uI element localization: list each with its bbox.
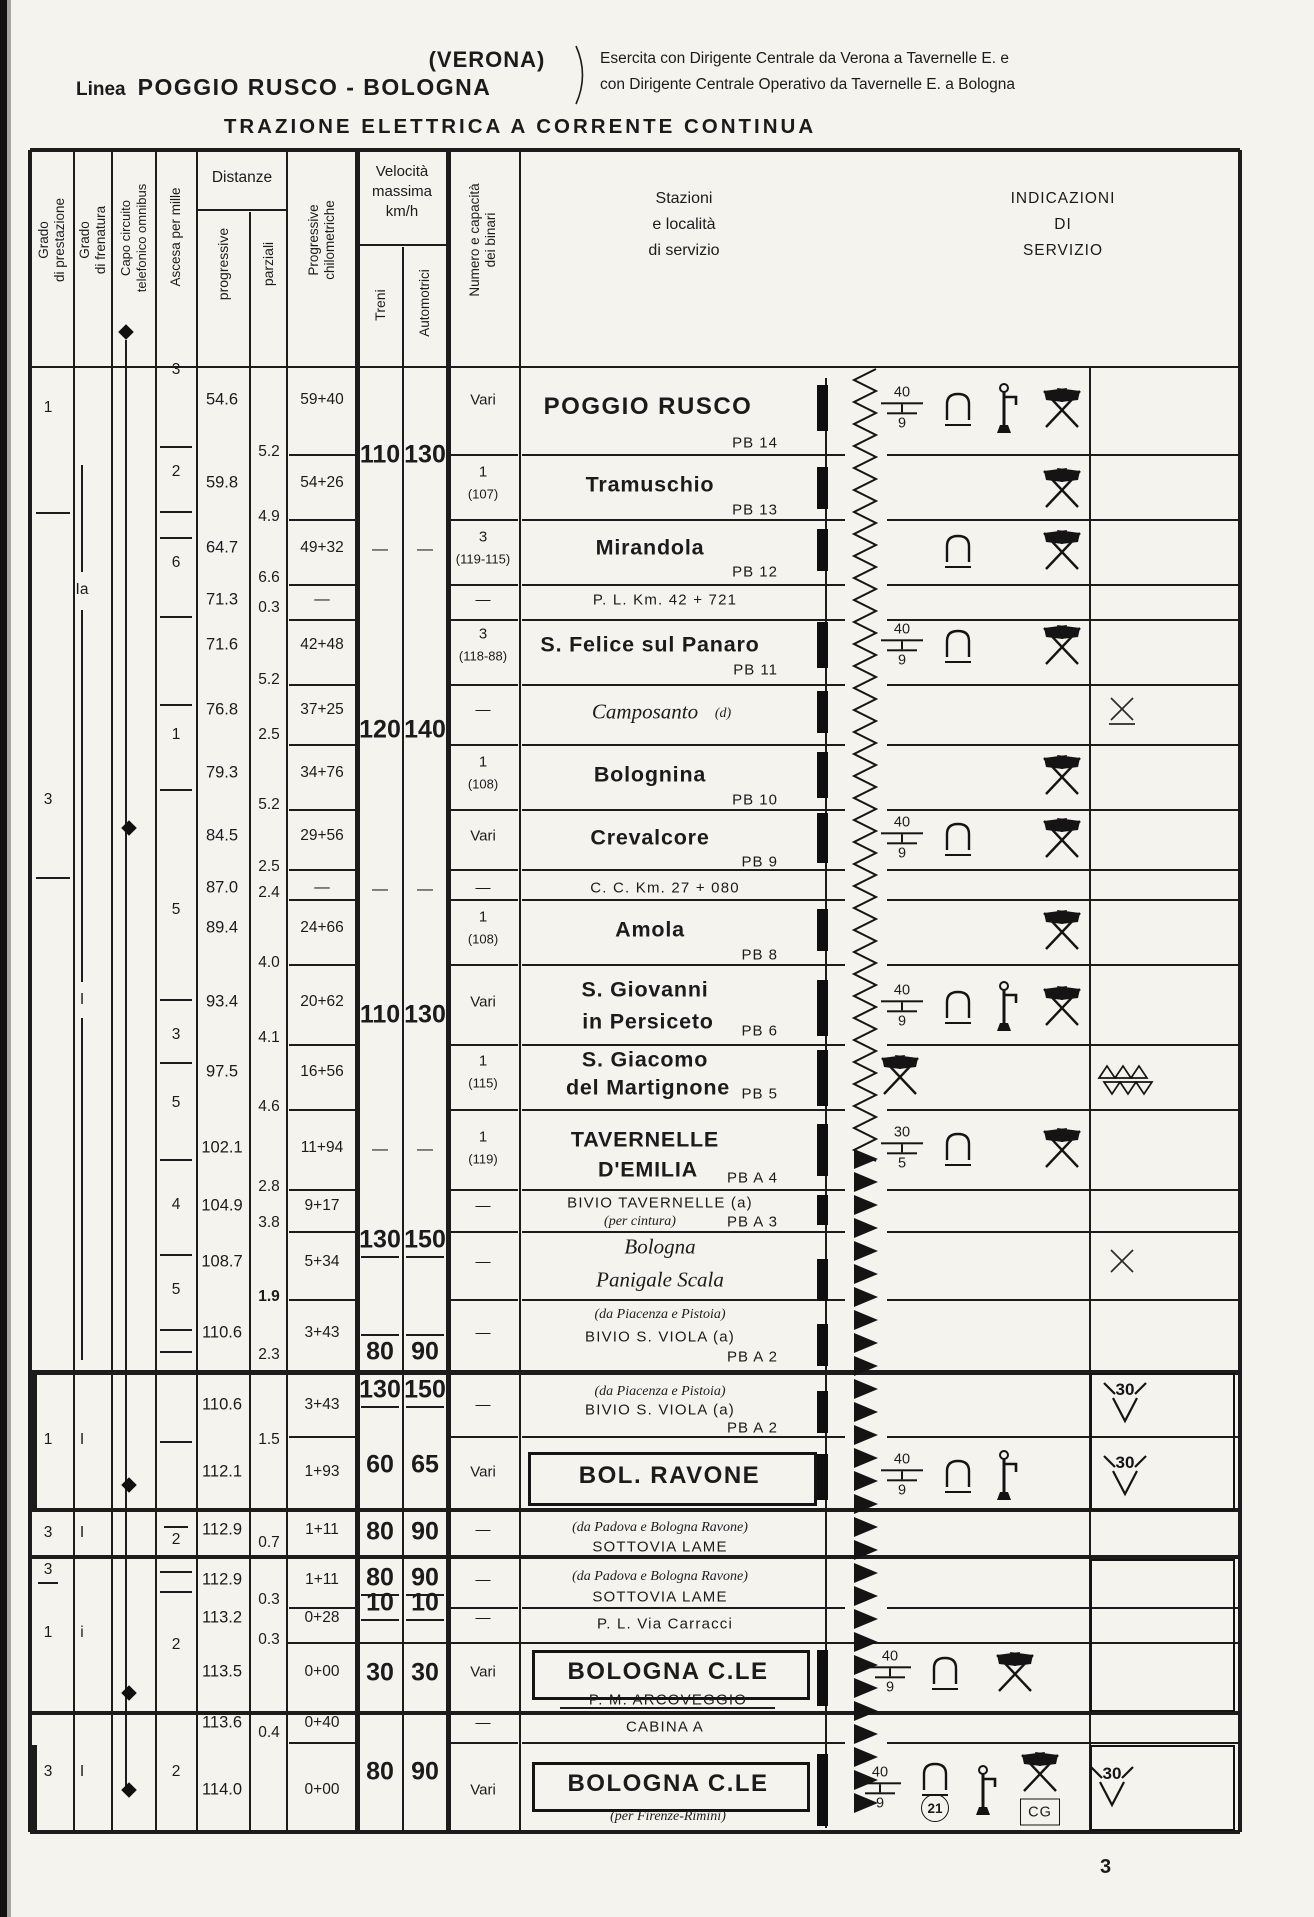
progressive-chilometriche: 0+40 [305, 1714, 340, 1732]
binari-count: — [476, 1572, 491, 1589]
shelter-arch-icon [938, 817, 978, 859]
speed-treni: 80 [366, 1518, 394, 1547]
station-track-marker [817, 752, 828, 798]
column-border [155, 150, 157, 1832]
crossed-flags-icon [1033, 1125, 1091, 1171]
column-border [519, 150, 521, 1832]
row-line-km [289, 1109, 356, 1111]
ascesa-dash [160, 1591, 192, 1593]
row-line-km [289, 809, 356, 811]
pb-label: PB A 2 [727, 1420, 778, 1437]
progressive-chilometriche: 29+56 [300, 827, 344, 845]
station-name: POGGIO RUSCO [544, 393, 753, 421]
speed-automotrici: 140 [404, 716, 446, 745]
progressive-chilometriche: — [314, 879, 330, 897]
col-header-treni: Treni [372, 289, 388, 320]
ascesa-value: 5 [172, 901, 181, 919]
crossed-flags-icon [1033, 907, 1091, 953]
speed-treni: 110 [360, 441, 400, 470]
shelter-arch-icon [938, 985, 978, 1027]
row-line-bin [450, 619, 518, 621]
progressive-chilometriche: 1+11 [305, 1521, 339, 1539]
column-border [28, 150, 32, 1832]
pb-label: PB 5 [741, 1086, 778, 1103]
row-line-km [289, 619, 356, 621]
shelter-arch-icon [938, 529, 978, 571]
progressive-chilometriche: 16+56 [300, 1063, 344, 1081]
distance-parziale: 6.6 [258, 569, 280, 587]
distance-progressive: 108.7 [201, 1253, 242, 1272]
distance-progressive: 71.3 [206, 591, 238, 610]
binari-count: Vari [470, 1464, 496, 1481]
grado-frenatura-value: I [80, 1763, 84, 1781]
speed-zone-rule [361, 1619, 399, 1621]
ascesa-value: 4 [172, 1196, 181, 1214]
water-crane-icon [968, 1763, 1002, 1817]
binari-capacity: (119) [468, 1152, 497, 1167]
station-note: (da Piacenza e Pistoia) [594, 1307, 725, 1323]
row-line-station [522, 584, 845, 586]
crossed-flags-icon [1011, 1749, 1069, 1795]
row-line-station [522, 809, 845, 811]
row-line-indicazioni [887, 584, 1238, 586]
station-name: S. Giovanni [581, 978, 708, 1003]
speed-zone-rule [361, 1406, 399, 1408]
distance-parziale: 2.8 [258, 1178, 280, 1196]
velocita-subrule [357, 244, 448, 246]
station-track-marker [817, 622, 828, 668]
station-name: SOTTOVIA LAME [592, 1539, 727, 1556]
binari-count: Vari [470, 1782, 496, 1799]
distance-parziale: 4.6 [258, 1098, 280, 1116]
binari-count: 1 [479, 1129, 487, 1146]
crossed-flags-icon [986, 1649, 1044, 1695]
pb-label: PB 13 [732, 502, 778, 519]
row-line-indicazioni [887, 454, 1238, 456]
capo-circuito-diamond-icon [118, 324, 134, 340]
progressive-chilometriche: 9+17 [305, 1197, 340, 1215]
speed-automotrici: 65 [411, 1451, 439, 1480]
distance-parziale: 0.3 [258, 1591, 280, 1609]
ascesa-dash [160, 446, 192, 448]
speed-treni: 110 [360, 1001, 400, 1030]
distance-progressive: 89.4 [206, 919, 238, 938]
distance-progressive: 79.3 [206, 764, 238, 783]
table-bottom-border [30, 1830, 1240, 1835]
ascesa-dash [160, 1329, 192, 1331]
speed-treni: — [372, 1141, 388, 1159]
weight-limit-icon: 409 [881, 385, 923, 430]
station-name: BOL. RAVONE [579, 1462, 760, 1490]
speed-automotrici: 90 [411, 1338, 439, 1367]
speed-automotrici: — [417, 881, 433, 899]
distance-parziale: 5.2 [258, 443, 280, 461]
speed-automotrici: 90 [411, 1518, 439, 1547]
row-line-indicazioni [887, 1189, 1238, 1191]
row-line-km [289, 454, 356, 456]
row-line-station [522, 1607, 845, 1609]
distance-progressive: 102.1 [201, 1139, 242, 1158]
row-line-indicazioni [887, 684, 1238, 686]
binari-count: 1 [479, 909, 487, 926]
ascesa-dash [160, 537, 192, 539]
crossed-flags-icon [1033, 983, 1091, 1029]
col-header-numero-binari: Numero e capacità dei binari [467, 183, 499, 296]
binari-count: Vari [470, 392, 496, 409]
ascesa-dash [160, 1571, 192, 1573]
distance-parziale: 4.1 [258, 1029, 280, 1047]
pb-label: PB A 3 [727, 1214, 778, 1231]
station-track-marker [817, 1454, 828, 1500]
indicazioni-section-box [1090, 1745, 1235, 1831]
column-border [402, 247, 404, 1832]
row-line-bin [450, 1742, 518, 1744]
speed-automotrici: 130 [404, 1001, 446, 1030]
capo-circuito-line [125, 340, 126, 1790]
ascesa-value: 6 [172, 554, 181, 572]
page-number: 3 [1100, 1856, 1111, 1879]
cg-badge: CG [1020, 1799, 1060, 1826]
station-track-marker [817, 980, 828, 1036]
grado-frenatura-value: I [80, 1431, 84, 1449]
station-name: Crevalcore [590, 826, 709, 851]
distance-parziale: 1.5 [258, 1431, 280, 1449]
speed-treni: 130 [359, 1376, 401, 1405]
grado-prestazione-value: 1 [44, 399, 53, 417]
row-line-station [522, 1436, 845, 1438]
station-track-marker [817, 1195, 828, 1225]
scan-edge-artifact [0, 0, 7, 1917]
station-name: BIVIO S. VIOLA (a) [585, 1402, 735, 1419]
shelter-arch-icon [938, 1127, 978, 1169]
capo-circuito-diamond-icon [121, 1782, 137, 1798]
binari-capacity: (115) [468, 1076, 497, 1091]
progressive-chilometriche: 11+94 [301, 1139, 343, 1157]
distance-parziale: 0.3 [258, 1631, 280, 1649]
station-track-marker [817, 1259, 828, 1301]
station-track-marker [817, 467, 828, 509]
row-line-km [289, 519, 356, 521]
station-sub-label: (per Firenze-Rimini) [610, 1809, 726, 1825]
station-name-2: in Persiceto [582, 1010, 713, 1035]
shelter-arch-icon [938, 1454, 978, 1496]
row-line-km [289, 684, 356, 686]
row-line-station [522, 1231, 845, 1233]
row-line-km [289, 1299, 356, 1301]
station-name: Bologna [624, 1235, 695, 1260]
progressive-chilometriche: 0+00 [305, 1663, 340, 1681]
binari-count: Vari [470, 828, 496, 845]
grado-prestazione-value: 3 [44, 1763, 53, 1781]
station-track-marker [817, 1324, 828, 1366]
row-line-indicazioni [887, 1044, 1238, 1046]
service-point-name: P. L. Km. 42 + 721 [593, 592, 737, 609]
weight-limit-icon: 305 [881, 1125, 923, 1170]
grado-prestazione-value: 1 [44, 1431, 53, 1449]
row-line-km [289, 1742, 356, 1744]
station-name: SOTTOVIA LAME [592, 1589, 727, 1606]
column-border [196, 150, 198, 1832]
row-line-indicazioni [887, 899, 1238, 901]
station-name: BOLOGNA C.LE [567, 1658, 768, 1686]
row-line-indicazioni [887, 519, 1238, 521]
station-track-marker [817, 813, 828, 863]
speed-zone-rule [361, 1256, 399, 1258]
ascesa-value: 2 [172, 1763, 181, 1781]
progressive-chilometriche: — [314, 591, 330, 609]
speed-automotrici: 30 [411, 1659, 439, 1688]
grado-prestazione-value: 1 [44, 1624, 53, 1642]
progressive-chilometriche: 49+32 [300, 539, 344, 557]
shelter-arch-icon [925, 1651, 965, 1693]
pb-label: PB 10 [732, 792, 778, 809]
operation-note-2: con Dirigente Centrale Operativo da Tave… [600, 76, 1015, 94]
binari-count: — [476, 1610, 491, 1627]
capo-circuito-diamond-icon [121, 820, 137, 836]
distance-progressive: 64.7 [206, 539, 238, 558]
row-line-station [522, 1189, 845, 1191]
distance-progressive: 87.0 [206, 879, 238, 898]
row-line-bin [450, 744, 518, 746]
speed-treni: 30 [366, 1659, 394, 1688]
weight-limit-icon: 409 [881, 1452, 923, 1497]
document-sheet: (VERONA) LineaPOGGIO RUSCO - BOLOGNA Ese… [0, 0, 1314, 1917]
pb-label: PB A 2 [727, 1349, 778, 1366]
speed-zone-rule [406, 1256, 444, 1258]
frenatura-span [81, 1018, 82, 1360]
binari-capacity: (107) [468, 487, 498, 502]
grado-frenatura-value: Ia [76, 581, 89, 599]
ascesa-dash [160, 789, 192, 791]
section-rule [30, 1370, 1240, 1375]
row-line-station [522, 1742, 845, 1744]
row-line-bin [450, 1231, 518, 1233]
progressive-chilometriche: 5+34 [305, 1253, 340, 1271]
distanze-subrule [197, 209, 287, 211]
prestazione-dash [36, 877, 70, 879]
weight-limit-icon: 409 [881, 983, 923, 1028]
col-header-stazioni: Stazioni e località di servizio [648, 186, 719, 264]
crossed-flags-icon [1033, 752, 1091, 798]
prestazione-dash [36, 512, 70, 514]
ascesa-dash [160, 511, 192, 513]
binari-count: — [476, 1198, 491, 1215]
progressive-chilometriche: 0+00 [305, 1781, 340, 1799]
ascesa-value: 2 [172, 463, 181, 481]
grado-prestazione-value: 3 [44, 1561, 53, 1579]
binari-count: — [476, 880, 491, 897]
station-name: S. Giacomo [582, 1048, 708, 1073]
distance-progressive: 113.2 [202, 1609, 242, 1628]
speed-zone-rule [406, 1619, 444, 1621]
station-name: Bolognina [594, 763, 706, 788]
progressive-chilometriche: 54+26 [300, 474, 344, 492]
distance-progressive: 112.1 [202, 1463, 242, 1482]
col-header-indicazioni: INDICAZIONI DI SERVIZIO [1011, 186, 1116, 264]
distance-progressive: 110.6 [202, 1396, 242, 1415]
ascesa-value: 5 [172, 1281, 181, 1299]
speed-treni: 120 [359, 716, 401, 745]
station-name-2: D'EMILIA [598, 1158, 698, 1183]
header-bottom-rule [30, 366, 1240, 369]
distance-progressive: 93.4 [206, 993, 238, 1012]
binari-count: — [476, 1325, 491, 1342]
water-crane-icon [989, 1448, 1023, 1502]
row-line-bin [450, 809, 518, 811]
ascesa-fraction-bar [164, 1526, 188, 1528]
row-line-bin [450, 1436, 518, 1438]
shelter-arch-icon [938, 624, 978, 666]
row-line-km [289, 584, 356, 586]
ascesa-dash [160, 999, 192, 1001]
speed-treni: 130 [359, 1226, 401, 1255]
distance-parziale: 5.2 [258, 671, 280, 689]
col-header-distanze: Distanze [212, 169, 272, 187]
section-bracket [30, 1374, 37, 1508]
frenatura-span [81, 465, 82, 572]
col-header-grado-frenatura: Grado di frenatura [77, 206, 109, 274]
station-track-marker [817, 1124, 828, 1176]
crossed-flags-icon [1033, 385, 1091, 431]
column-border [111, 150, 113, 1832]
binari-count: 3 [479, 626, 487, 643]
line-label: Linea [76, 79, 126, 100]
line-name: POGGIO RUSCO - BOLOGNA [138, 74, 492, 100]
distance-parziale: 3.8 [258, 1214, 280, 1232]
progressive-chilometriche: 59+40 [300, 391, 344, 409]
binari-count: 1 [479, 1053, 487, 1070]
water-crane-icon [989, 979, 1023, 1033]
row-line-km [289, 1436, 356, 1438]
column-border [355, 150, 360, 1832]
station-name-2: Panigale Scala [596, 1268, 724, 1293]
row-line-bin [450, 1044, 518, 1046]
ascesa-value: 5 [172, 1094, 181, 1112]
distance-parziale: 2.4 [258, 884, 280, 902]
row-line-station [522, 869, 845, 871]
crossed-flags-icon [1033, 465, 1091, 511]
ascesa-dash [160, 704, 192, 706]
speed-treni: 10 [366, 1589, 394, 1618]
col-header-grado-prestazione: Grado di prestazione [36, 198, 68, 282]
distance-progressive: 114.0 [202, 1781, 242, 1800]
ascesa-dash [160, 1159, 192, 1161]
row-line-bin [450, 584, 518, 586]
ascesa-dash [160, 1441, 192, 1443]
row-line-bin [450, 1299, 518, 1301]
indicazioni-section-box [1090, 1559, 1235, 1712]
speed-treni: 60 [366, 1451, 394, 1480]
distance-progressive: 113.5 [202, 1663, 242, 1682]
station-name: Mirandola [596, 536, 705, 561]
pb-label: PB 12 [732, 564, 778, 581]
binari-count: — [476, 702, 491, 719]
section-rule [30, 1508, 1240, 1512]
row-line-bin [450, 869, 518, 871]
service-point-name: C. C. Km. 27 + 080 [590, 880, 740, 897]
binari-capacity: (108) [468, 932, 498, 947]
indicazioni-section-box [1090, 1373, 1235, 1511]
row-line-station [522, 1299, 845, 1301]
distance-parziale: 0.7 [258, 1534, 280, 1552]
station-name: S. Felice sul Panaro [540, 633, 759, 658]
row-line-station [522, 684, 845, 686]
row-line-km [289, 744, 356, 746]
column-border [286, 150, 288, 1832]
progressive-chilometriche: 34+76 [300, 764, 344, 782]
station-track-marker [817, 1050, 828, 1106]
distance-parziale: 2.3 [258, 1346, 280, 1364]
speed-automotrici: 130 [404, 441, 446, 470]
speed-zone-rule [406, 1334, 444, 1336]
row-line-bin [450, 684, 518, 686]
circled-number-badge: 21 [921, 1794, 949, 1822]
crossing-x-icon [1107, 1246, 1137, 1278]
speed-treni: 80 [366, 1338, 394, 1367]
speed-zone-rule [361, 1334, 399, 1336]
grado-prestazione-value: 3 [44, 1524, 53, 1542]
station-note: (da Padova e Bologna Ravone) [572, 1520, 748, 1536]
service-point-name: P. L. Via Carracci [597, 1616, 733, 1633]
distance-progressive: 110.6 [202, 1324, 242, 1343]
distance-parziale: 0.4 [258, 1724, 280, 1742]
row-line-km [289, 1044, 356, 1046]
col-header-capo-circuito: Capo circuito telefonico omnibus [118, 184, 150, 292]
grado-frenatura-value: i [80, 1624, 83, 1642]
row-line-station [522, 519, 845, 521]
binari-count: Vari [470, 994, 496, 1011]
row-line-bin [450, 1189, 518, 1191]
distance-progressive: 71.6 [206, 636, 238, 655]
column-border [249, 212, 251, 1832]
line-boundary-zigzag [846, 367, 884, 1833]
station-note: (da Piacenza e Pistoia) [594, 1384, 725, 1400]
brace-decoration [572, 44, 594, 106]
distance-progressive: 76.8 [206, 701, 238, 720]
speed-zone-rule [406, 1406, 444, 1408]
pb-label: PB 9 [741, 854, 778, 871]
column-border [73, 150, 75, 1832]
distance-progressive: 84.5 [206, 827, 238, 846]
speed-automotrici: 150 [404, 1376, 446, 1405]
station-track-marker [817, 1754, 828, 1826]
line-via-label: (VERONA) [429, 47, 546, 73]
row-line-bin [450, 1109, 518, 1111]
binari-count: — [476, 1715, 491, 1732]
crossing-x-icon [1107, 694, 1137, 726]
distance-parziale: 4.9 [258, 508, 280, 526]
station-track-marker [817, 529, 828, 571]
distance-progressive: 59.8 [206, 474, 238, 493]
distance-parziale: 5.2 [258, 796, 280, 814]
table-top-border [30, 148, 1240, 152]
row-line-indicazioni [887, 964, 1238, 966]
distance-parziale: 2.5 [258, 726, 280, 744]
progressive-chilometriche: 0+28 [305, 1609, 340, 1627]
ascesa-value: 3 [172, 361, 181, 379]
binari-count: 1 [479, 464, 487, 481]
progressive-chilometriche: 42+48 [300, 636, 344, 654]
distance-progressive: 54.6 [206, 391, 238, 410]
underline [38, 1582, 58, 1584]
speed-automotrici: — [417, 541, 433, 559]
binari-capacity: (118-88) [459, 649, 507, 664]
binari-count: — [476, 1522, 491, 1539]
station-name: Camposanto [592, 700, 698, 725]
frenatura-span [81, 610, 82, 982]
speed-automotrici: 90 [411, 1758, 439, 1787]
row-line-indicazioni [887, 869, 1238, 871]
